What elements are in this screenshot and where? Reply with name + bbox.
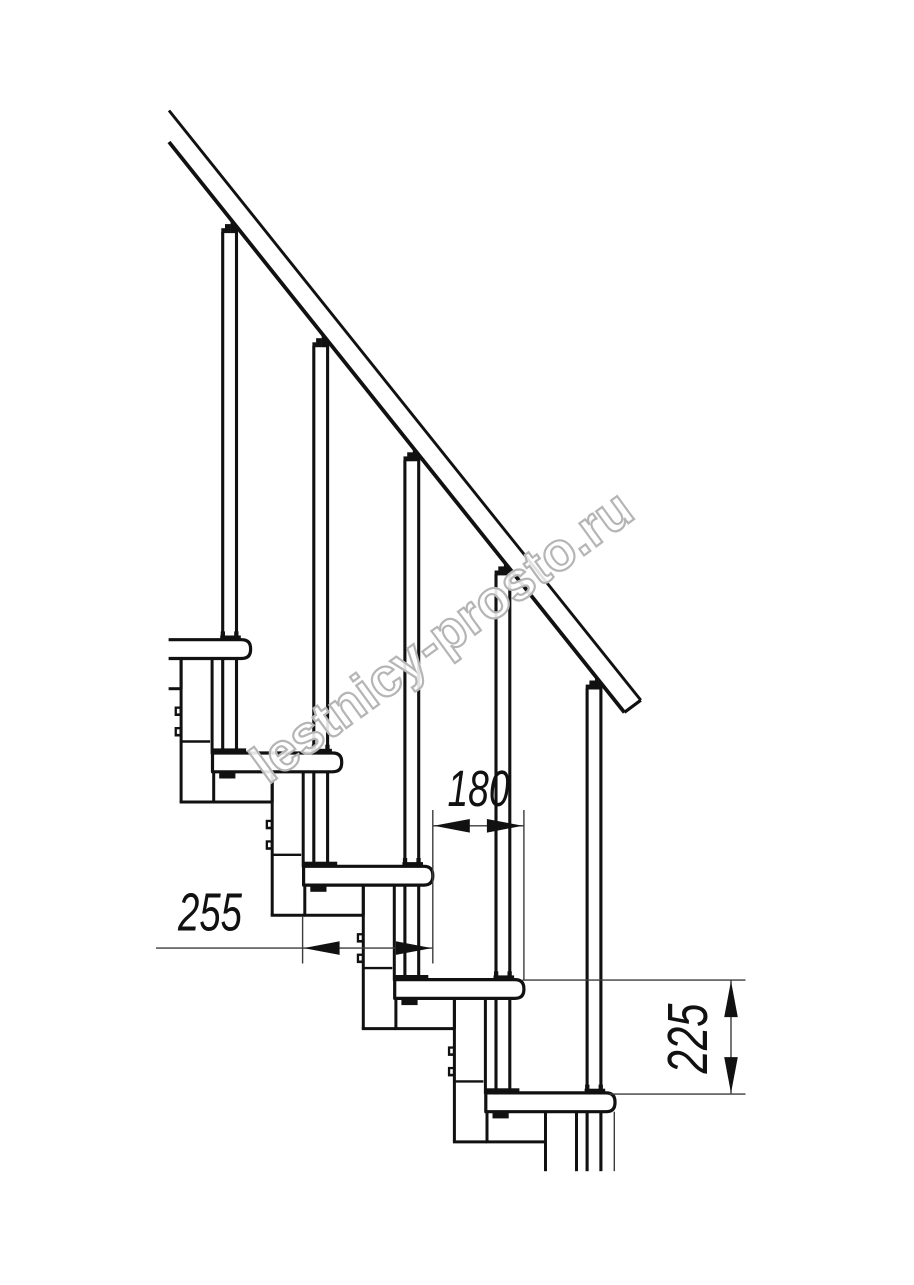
svg-text:lestnicy-prosto.ru: lestnicy-prosto.ru: [240, 478, 644, 795]
svg-text:180: 180: [448, 760, 510, 817]
svg-text:255: 255: [177, 883, 242, 943]
svg-text:225: 225: [656, 1003, 720, 1074]
